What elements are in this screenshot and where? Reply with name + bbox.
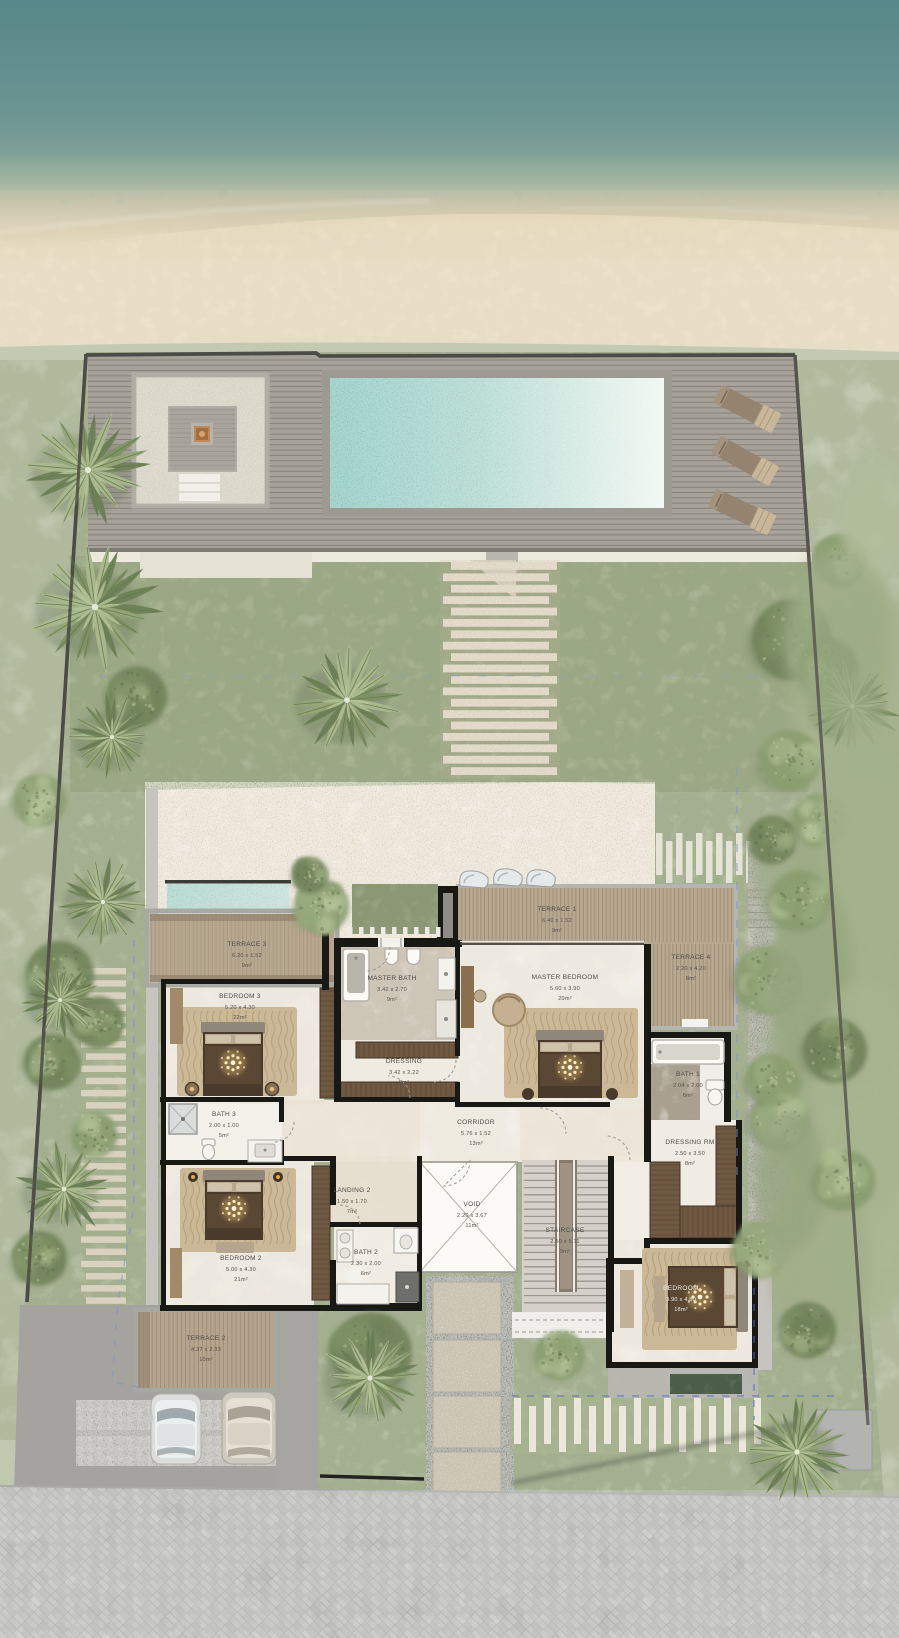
svg-text:TERRACE 3: TERRACE 3: [227, 941, 266, 948]
svg-text:TERRACE 2: TERRACE 2: [186, 1335, 225, 1342]
svg-text:9m²: 9m²: [387, 997, 397, 1003]
svg-text:TERRACE 1: TERRACE 1: [537, 906, 576, 913]
svg-text:BATH 3: BATH 3: [212, 1111, 236, 1118]
svg-text:7m²: 7m²: [347, 1209, 357, 1215]
svg-text:11m²: 11m²: [465, 1223, 478, 1229]
svg-text:20m²: 20m²: [558, 996, 572, 1002]
svg-text:1.50 x 1.70: 1.50 x 1.70: [337, 1199, 367, 1205]
svg-text:3.42 x 2.22: 3.42 x 2.22: [389, 1070, 419, 1076]
svg-text:6m²: 6m²: [361, 1271, 371, 1277]
svg-text:CORRIDOR: CORRIDOR: [457, 1119, 495, 1126]
svg-text:DRESSING: DRESSING: [386, 1058, 422, 1065]
svg-text:5.76 x 1.52: 5.76 x 1.52: [461, 1131, 491, 1137]
svg-text:8m²: 8m²: [686, 976, 696, 982]
svg-text:TERRACE 4: TERRACE 4: [671, 954, 710, 961]
svg-text:MASTER BEDROOM: MASTER BEDROOM: [532, 974, 599, 981]
svg-text:5.60 x 3.90: 5.60 x 3.90: [550, 986, 580, 992]
svg-text:MASTER BATH: MASTER BATH: [367, 975, 416, 982]
svg-text:9m²: 9m²: [552, 928, 562, 934]
svg-text:21m²: 21m²: [234, 1277, 248, 1283]
svg-text:22m²: 22m²: [233, 1015, 247, 1021]
svg-text:3.42 x 2.70: 3.42 x 2.70: [377, 987, 407, 993]
svg-text:2.50 x 5.11: 2.50 x 5.11: [550, 1239, 579, 1245]
svg-text:BEDROOM: BEDROOM: [663, 1285, 699, 1292]
svg-text:9m²: 9m²: [560, 1249, 570, 1255]
svg-text:5.00 x 4.30: 5.00 x 4.30: [226, 1267, 256, 1273]
svg-text:BEDROOM 3: BEDROOM 3: [219, 993, 261, 1000]
svg-text:2.20 x 3.67: 2.20 x 3.67: [457, 1213, 487, 1219]
svg-text:2.30 x 2.00: 2.30 x 2.00: [351, 1261, 381, 1267]
svg-text:3.90 x 4.80: 3.90 x 4.80: [666, 1297, 696, 1303]
svg-text:9m²: 9m²: [242, 963, 252, 969]
svg-text:5.20 x 4.30: 5.20 x 4.30: [225, 1005, 255, 1011]
svg-text:2.50 x 3.50: 2.50 x 3.50: [675, 1151, 705, 1157]
svg-text:STAIRCASE: STAIRCASE: [545, 1227, 584, 1234]
svg-text:10m²: 10m²: [199, 1357, 213, 1363]
svg-text:6.40 x 1.52: 6.40 x 1.52: [542, 918, 572, 924]
svg-text:5m²: 5m²: [219, 1133, 229, 1139]
svg-text:DRESSING RM: DRESSING RM: [665, 1139, 714, 1146]
svg-text:VOID: VOID: [463, 1201, 480, 1208]
svg-text:8m²: 8m²: [399, 1080, 409, 1086]
svg-text:18m²: 18m²: [674, 1307, 688, 1313]
svg-text:2.20 x 4.20: 2.20 x 4.20: [676, 966, 706, 972]
svg-text:LANDING 2: LANDING 2: [333, 1187, 370, 1194]
svg-text:8m²: 8m²: [685, 1161, 695, 1167]
svg-text:6.20 x 1.52: 6.20 x 1.52: [232, 953, 262, 959]
svg-text:BATH 1: BATH 1: [676, 1071, 700, 1078]
svg-text:6m²: 6m²: [683, 1093, 693, 1099]
svg-text:2.04 x 2.00: 2.04 x 2.00: [673, 1083, 703, 1089]
svg-text:13m²: 13m²: [469, 1141, 483, 1147]
svg-text:2.00 x 1.00: 2.00 x 1.00: [209, 1123, 239, 1129]
svg-text:BATH 2: BATH 2: [354, 1249, 378, 1256]
svg-text:BEDROOM 2: BEDROOM 2: [220, 1255, 262, 1262]
svg-text:4.37 x 2.33: 4.37 x 2.33: [191, 1347, 221, 1353]
